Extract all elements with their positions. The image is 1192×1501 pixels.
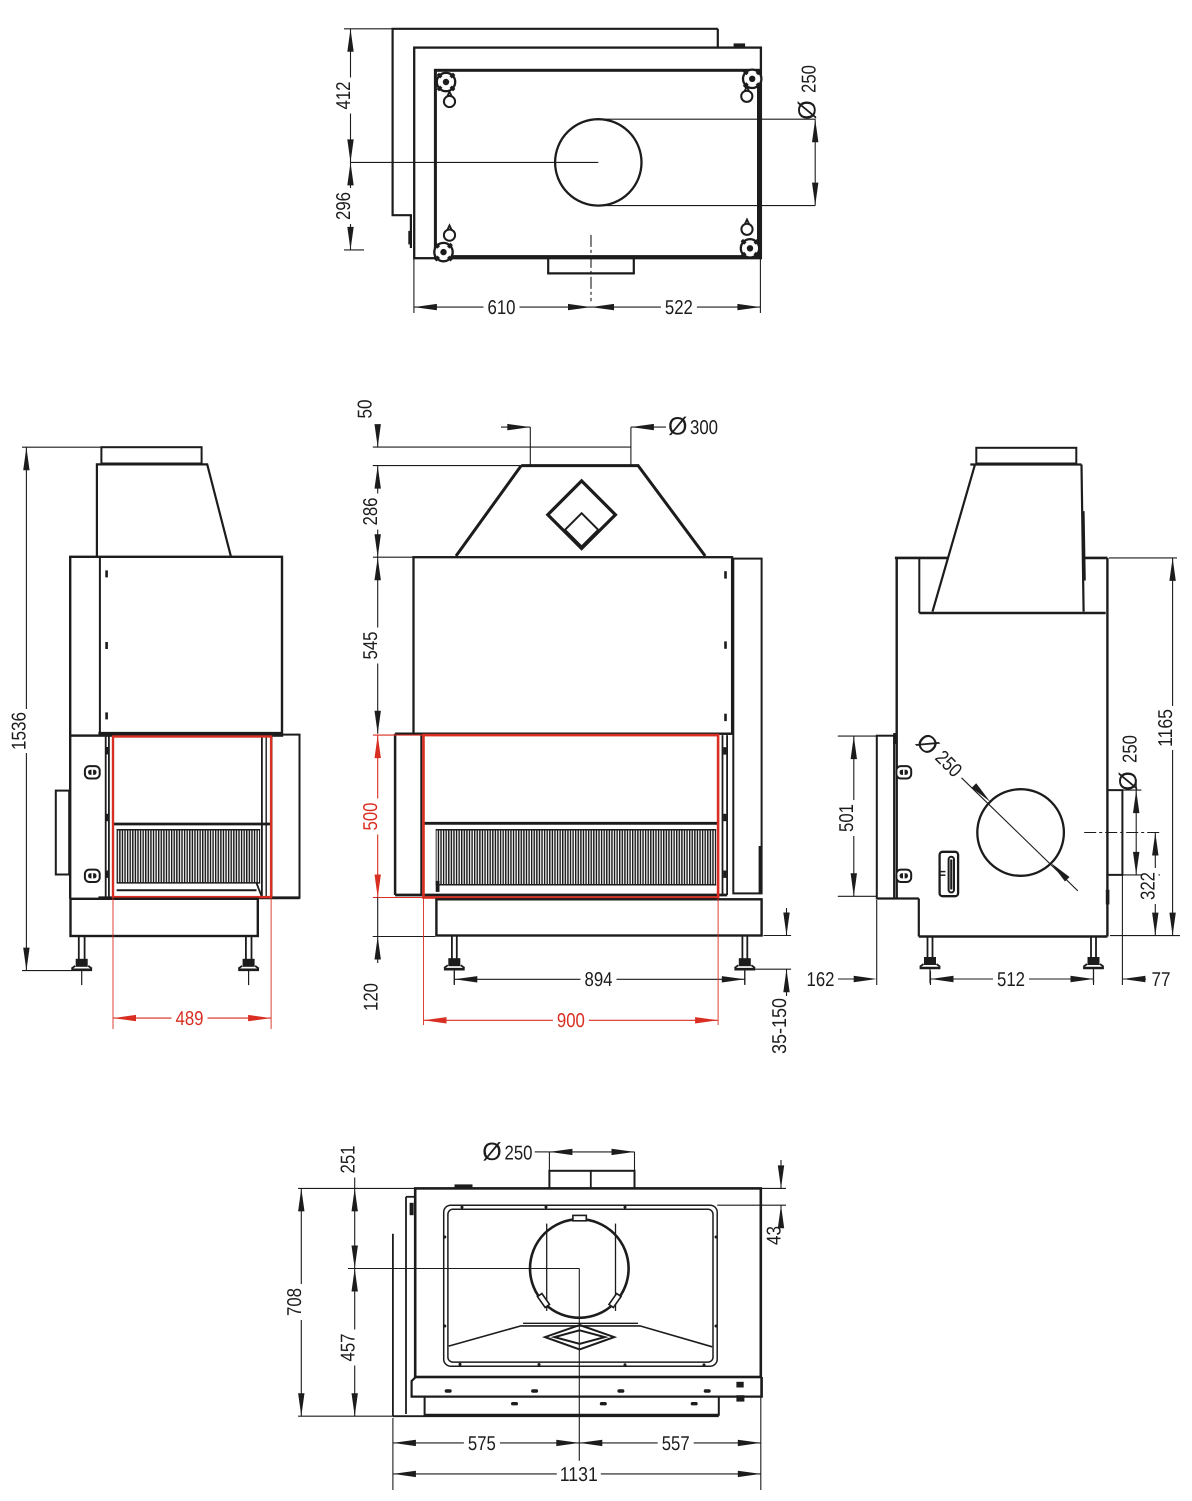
svg-text:412: 412	[333, 82, 355, 110]
svg-text:522: 522	[665, 297, 693, 319]
svg-text:250: 250	[505, 1143, 533, 1165]
svg-text:894: 894	[585, 969, 613, 991]
svg-text:296: 296	[333, 192, 355, 220]
svg-text:120: 120	[361, 983, 383, 1011]
svg-text:250: 250	[1120, 735, 1142, 763]
svg-text:Ø: Ø	[668, 413, 687, 441]
svg-text:610: 610	[488, 297, 516, 319]
svg-text:77: 77	[1152, 969, 1171, 991]
svg-text:1131: 1131	[560, 1464, 598, 1486]
svg-text:251: 251	[338, 1146, 360, 1174]
svg-text:250: 250	[799, 65, 821, 93]
svg-text:500: 500	[360, 803, 382, 831]
svg-text:Ø: Ø	[794, 100, 822, 119]
svg-text:1165: 1165	[1155, 709, 1177, 747]
svg-text:575: 575	[468, 1433, 496, 1455]
svg-text:708: 708	[284, 1288, 306, 1316]
svg-text:Ø: Ø	[1115, 771, 1143, 790]
svg-text:489: 489	[176, 1008, 204, 1030]
svg-text:35-150: 35-150	[769, 998, 791, 1054]
svg-text:286: 286	[360, 498, 382, 526]
svg-text:43: 43	[764, 1226, 786, 1245]
svg-text:557: 557	[662, 1433, 690, 1455]
svg-text:512: 512	[997, 969, 1025, 991]
svg-text:457: 457	[338, 1334, 360, 1362]
svg-text:545: 545	[360, 632, 382, 660]
svg-text:Ø: Ø	[482, 1138, 501, 1166]
svg-text:322: 322	[1138, 872, 1160, 900]
svg-text:1536: 1536	[9, 712, 31, 750]
svg-text:900: 900	[557, 1010, 585, 1032]
svg-text:501: 501	[836, 804, 858, 832]
svg-text:300: 300	[690, 417, 718, 439]
svg-text:162: 162	[807, 969, 835, 991]
svg-text:50: 50	[355, 400, 377, 419]
